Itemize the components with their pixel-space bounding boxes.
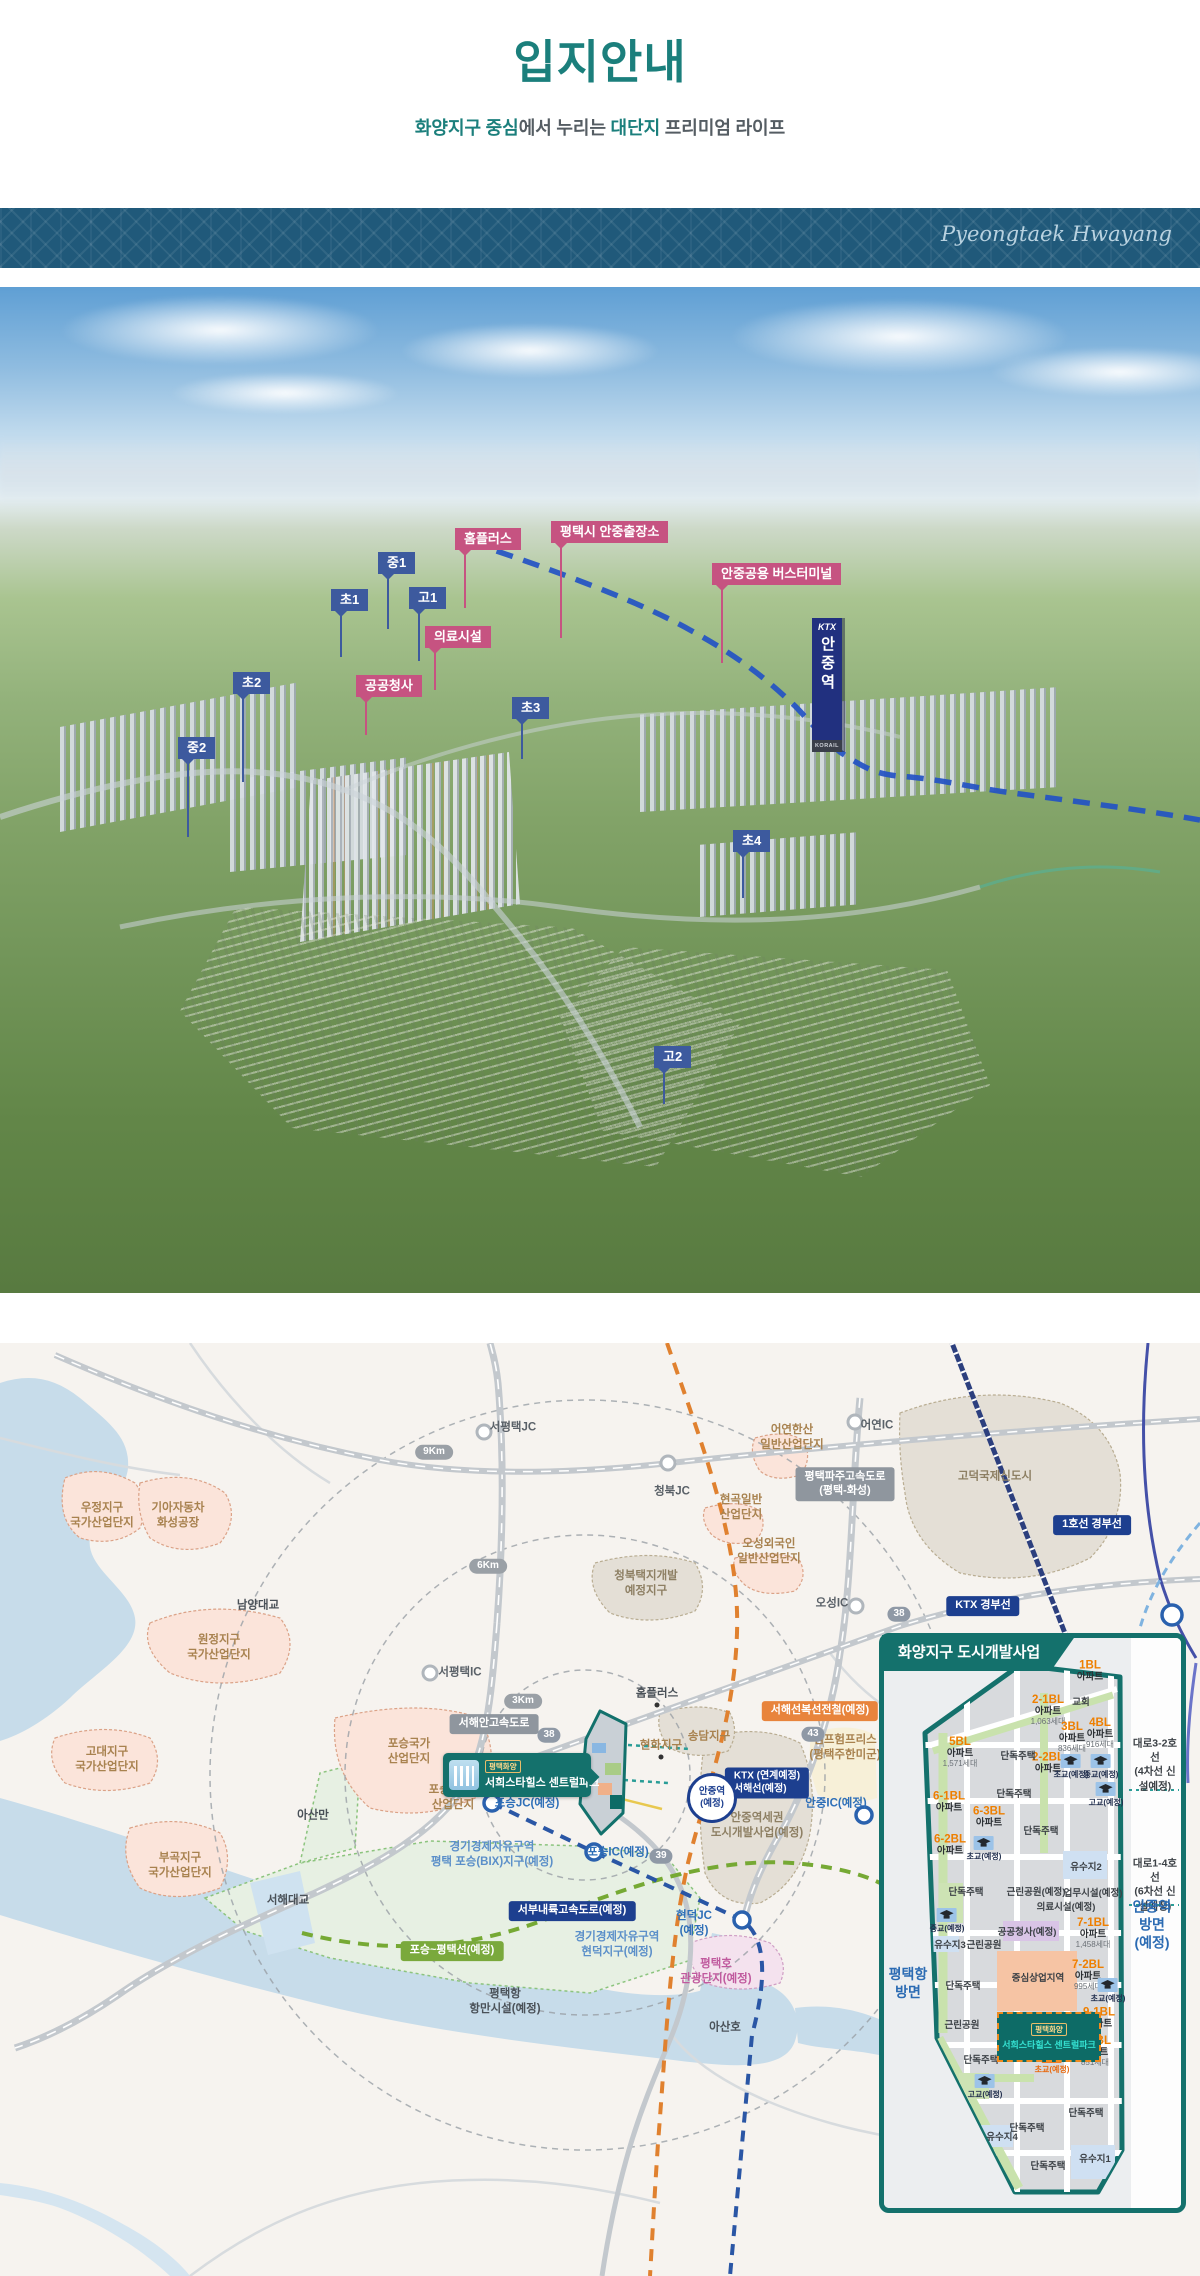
school-caption: 고교(예정) [1089, 1797, 1124, 1808]
school-caption: 고교(예정) [968, 2089, 1003, 2100]
map-label-text: 포승IC(예정) [587, 1847, 648, 1859]
aerial-map-label-text: 의료시설 [434, 629, 482, 644]
block-number: 5BL [943, 1736, 978, 1749]
map-label-text: 포승JC(예정) [495, 1798, 560, 1810]
aerial-map-label-text: 초4 [742, 833, 761, 848]
map-label: 서평택IC [438, 1666, 481, 1681]
panel-plain-label: 단독주택 [964, 2052, 999, 2066]
map-badge: 3Km [504, 1694, 542, 1709]
aerial-map-label: 초1 [331, 589, 368, 611]
panel-block-label: 6-3BL 아파트 [973, 1805, 1005, 1829]
block-number: 3BL [1058, 1721, 1086, 1734]
aerial-map-label-text: 평택시 안중출장소 [560, 524, 659, 539]
site-tag: 평택화양 [1031, 2023, 1067, 2036]
map-label: 안중IC(예정) [805, 1797, 866, 1812]
panel-plain-text: 공공청사(예정) [998, 1927, 1057, 1938]
label-tail [464, 550, 466, 608]
aerial-map-label: 의료시설 [425, 626, 491, 648]
label-tail [742, 852, 744, 898]
map-label: 어연IC [861, 1419, 894, 1434]
map-badge-text: 39 [655, 1850, 666, 1861]
panel-roadnote-text: 평택항 방면 [889, 1966, 928, 2000]
label-tail [242, 694, 244, 782]
map-label-text: 기아자동차 화성공장 [152, 1502, 205, 1529]
school-caption: 초교(예정) [1035, 2064, 1070, 2075]
project-tag: 평택화양 [485, 1760, 521, 1773]
panel-plain-label: 단독주택 [946, 1978, 981, 1992]
map-label: 경기경제자유구역 현덕지구(예정) [575, 1930, 660, 1960]
panel-plain-label: 근린공원(예정) [1007, 1884, 1066, 1898]
panel-plain-label: 중심상업지역 [1012, 1970, 1064, 1984]
map-label: 송담지구 [688, 1730, 730, 1745]
map-label-text: 평택항 항만시설(예정) [469, 1988, 540, 2015]
map-label-text: 우정지구 국가산업단지 [70, 1502, 133, 1529]
panel-plain-text: 단독주택 [997, 1789, 1032, 1800]
subtitle-plain-1: 에서 누리는 [519, 118, 611, 138]
panel-block-label: 5BL 아파트 1,571세대 [943, 1736, 978, 1768]
label-tail [434, 648, 436, 690]
map-label: 평택호 관광단지(예정) [680, 1957, 751, 1987]
aerial-map-label: 고1 [409, 587, 446, 609]
panel-plain-text: 유수지2 [1070, 1862, 1102, 1873]
panel-plain-label: 의료시설(예정) [1037, 1899, 1096, 1913]
panel-plain-text: 근린공원 [967, 1940, 1002, 1951]
map-label: 오성IC [816, 1597, 849, 1612]
panel-plain-label: 근린공원 [967, 1937, 1002, 1951]
project-site-block: 평택화양 서희스타힐스 센트럴파크 [997, 2012, 1101, 2062]
panel-plain-label: 유수지3 [934, 1937, 966, 1951]
map-label-text: 고덕국제신도시 [958, 1471, 1032, 1483]
anjung-station-sign: KTX 안중역 KORAIL [812, 618, 842, 752]
block-units: 1,571세대 [943, 1759, 978, 1768]
panel-plain-text: 의료시설(예정) [1037, 1902, 1096, 1913]
map-badge-text: KTX (연계예정) 서해선(예정) [734, 1771, 800, 1795]
block-use: 아파트 [1077, 1672, 1103, 1683]
panel-plain-text: 단독주택 [1031, 2161, 1066, 2172]
map-label-text: 평택호 관광단지(예정) [680, 1958, 751, 1985]
spacer [0, 1293, 1200, 1343]
map-label: 원정지구 국가산업단지 [187, 1633, 250, 1663]
map-label: 부곡지구 국가산업단지 [148, 1851, 211, 1881]
map-badge-text: 38 [543, 1729, 554, 1740]
map-label-text: 남양대교 [237, 1600, 279, 1612]
block-use: 아파트 [933, 1803, 965, 1814]
panel-roadnote: 대로3-2호선 (4차선 신설예정) [1133, 1737, 1178, 1794]
map-badge: 1호선 경부선 [1053, 1515, 1131, 1535]
panel-roadnote: 안중역방면 (예정) [1128, 1898, 1176, 1953]
panel-plain-label: 단독주택 [1031, 2158, 1066, 2172]
label-tail [521, 719, 523, 759]
map-badge-text: 서부내륙고속도로(예정) [518, 1904, 627, 1916]
panel-plain-label: 업무시설(예정) [1064, 1885, 1123, 1899]
block-use: 아파트 [1086, 1730, 1114, 1741]
panel-block-label: 6-2BL 아파트 [934, 1833, 966, 1857]
map-label-text: 송담지구 [688, 1731, 730, 1743]
map-label: 홈플러스 [636, 1687, 678, 1702]
map-badge-text: 서해안고속도로 [459, 1717, 530, 1729]
school-icon [974, 1836, 994, 1850]
map-label-text: 청북JC [654, 1486, 690, 1498]
map-label-text: 오성외국인 일반산업단지 [737, 1538, 800, 1565]
school-marker: 고교(예정) [1089, 1782, 1124, 1808]
school-marker: 초교(예정) [967, 1836, 1002, 1862]
map-badge: 서부내륙고속도로(예정) [509, 1901, 636, 1921]
map-label: 기아자동차 화성공장 [152, 1501, 205, 1531]
aerial-map-label: 고2 [654, 1046, 691, 1068]
map-label-text: 현화지구 [640, 1740, 682, 1752]
school-icon [975, 2074, 995, 2088]
label-tail [721, 585, 723, 663]
panel-block-label: 7-1BL 아파트 1,458세대 [1076, 1917, 1111, 1949]
block-number: 1BL [1077, 1659, 1103, 1672]
map-badge-text: 38 [893, 1608, 904, 1619]
aerial-roads-layer [0, 287, 1200, 1293]
map-badge: 서해선복선전철(예정) [762, 1701, 878, 1721]
station-name-vertical: 안중역 [817, 634, 838, 740]
panel-plain-text: 유수지1 [1079, 2154, 1111, 2165]
panel-roadnote-text: 안중역방면 (예정) [1133, 1899, 1172, 1951]
map-label: 현화지구 [640, 1739, 682, 1754]
aerial-map-label: 중1 [378, 552, 415, 574]
school-marker: 중교(예정) [1084, 1754, 1119, 1780]
site-name: 서희스타힐스 센트럴파크 [1002, 2038, 1096, 2051]
label-tail [560, 543, 562, 638]
panel-plain-text: 단독주택 [1001, 1751, 1036, 1762]
panel-plain-label: 유수지2 [1070, 1859, 1102, 1873]
section-header: 입지안내 화양지구 중심에서 누리는 대단지 프리미엄 라이프 [0, 0, 1200, 208]
aerial-birdseye-view: 홈플러스평택시 안중출장소안중공용 버스터미널의료시설공공청사중1초1고1초2중… [0, 287, 1200, 1293]
map-label-text: 어연한산 일반산업단지 [760, 1424, 823, 1451]
map-label: 청북JC [654, 1485, 690, 1500]
block-use: 아파트 [1058, 1734, 1086, 1745]
subtitle-plain-2: 프리미엄 라이프 [660, 118, 785, 138]
map-label: 평택항 항만시설(예정) [469, 1987, 540, 2017]
label-tail [365, 697, 367, 735]
aerial-map-label-text: 초1 [340, 592, 359, 607]
korail-logo: KORAIL [812, 740, 842, 752]
panel-roadnote: 평택항 방면 [889, 1965, 928, 2001]
map-label-text: 현덕JC (예정) [676, 1910, 712, 1937]
map-label: 오성외국인 일반산업단지 [737, 1537, 800, 1567]
block-units: 1,458세대 [1076, 1940, 1111, 1949]
page-subtitle: 화양지구 중심에서 누리는 대단지 프리미엄 라이프 [0, 114, 1200, 140]
map-label: 남양대교 [237, 1599, 279, 1614]
block-units: 916세대 [1086, 1740, 1114, 1749]
location-map: 우정지구 국가산업단지기아자동차 화성공장원정지구 국가산업단지고대지구 국가산… [0, 1343, 1200, 2276]
map-label: 포승JC(예정) [495, 1797, 560, 1812]
map-label: 고덕국제신도시 [958, 1470, 1032, 1485]
map-badge-text: 6Km [477, 1560, 499, 1571]
map-badge-text: KTX 경부선 [955, 1599, 1010, 1611]
block-use: 아파트 [973, 1818, 1005, 1829]
school-caption: 중교(예정) [1084, 1769, 1119, 1780]
spacer [0, 268, 1200, 287]
block-number: 6-3BL [973, 1805, 1005, 1818]
map-badge: 평택파주고속도로 (평택-화성) [796, 1467, 895, 1501]
school-marker: 중교(예정) [930, 1908, 965, 1934]
map-label: 현곡일반 산업단지 [720, 1493, 762, 1523]
map-label: 고대지구 국가산업단지 [75, 1745, 138, 1775]
map-label-text: 포승국가 산업단지 [388, 1738, 430, 1765]
map-label-text: 원정지구 국가산업단지 [187, 1634, 250, 1661]
map-badge: KTX 경부선 [946, 1596, 1019, 1616]
school-icon [1091, 1754, 1111, 1768]
map-label: 경기경제자유구역 평택 포승(BIX)지구(예정) [431, 1840, 553, 1870]
map-label: 우정지구 국가산업단지 [70, 1501, 133, 1531]
map-badge-text: 1호선 경부선 [1062, 1518, 1122, 1530]
map-badge: 안중역 (예정) [687, 1773, 737, 1823]
map-label: 포승국가 산업단지 [388, 1737, 430, 1767]
map-label-text: 부곡지구 국가산업단지 [148, 1852, 211, 1879]
aerial-map-label-text: 고1 [418, 590, 437, 605]
map-label-text: 아산호 [709, 2022, 741, 2034]
panel-plain-text: 단독주택 [949, 1887, 984, 1898]
panel-plain-text: 중심상업지역 [1012, 1973, 1064, 1984]
panel-plain-label: 단독주택 [949, 1884, 984, 1898]
block-use: 아파트 [943, 1749, 978, 1760]
block-number: 6-1BL [933, 1790, 965, 1803]
panel-plain-label: 단독주택 [1069, 2105, 1104, 2119]
aerial-map-label-text: 공공청사 [365, 678, 413, 693]
panel-block-label: 3BL 아파트 836세대 [1058, 1721, 1086, 1753]
aerial-map-label: 초4 [733, 830, 770, 852]
aerial-map-label: 초2 [233, 672, 270, 694]
subtitle-accent-1: 화양지구 중심 [415, 118, 519, 138]
label-tail [187, 759, 189, 837]
school-icon [1096, 1782, 1116, 1796]
map-label-text: 경기경제자유구역 평택 포승(BIX)지구(예정) [431, 1841, 553, 1868]
aerial-map-label-text: 초2 [242, 675, 261, 690]
aerial-map-label: 초3 [512, 697, 549, 719]
map-badge-text: 3Km [512, 1695, 534, 1706]
panel-plain-text: 단독주택 [964, 2055, 999, 2066]
map-label-text: 서해대교 [267, 1895, 309, 1907]
aerial-map-label-text: 중2 [187, 740, 206, 755]
school-caption: 초교(예정) [967, 1851, 1002, 1862]
aerial-map-label: 홈플러스 [455, 528, 521, 550]
ktx-logo: KTX [818, 618, 836, 634]
pattern-banner: Pyeongtaek Hwayang [0, 208, 1200, 268]
map-badge: 39 [649, 1849, 672, 1864]
map-badge: KTX (연계예정) 서해선(예정) [725, 1768, 809, 1799]
map-badge: 포승~평택선(예정) [401, 1941, 504, 1961]
panel-plain-text: 근린공원 [945, 2020, 980, 2031]
aerial-map-label: 안중공용 버스터미널 [712, 563, 841, 585]
panel-block-label: 1BL 아파트 [1077, 1659, 1103, 1683]
map-badge: 서해안고속도로 [450, 1714, 539, 1734]
block-number: 7-1BL [1076, 1917, 1111, 1930]
panel-plain-label: 근린공원 [945, 2017, 980, 2031]
aerial-map-label-text: 안중공용 버스터미널 [721, 566, 832, 581]
school-caption: 중교(예정) [930, 1923, 965, 1934]
map-label-text: 아산만 [297, 1810, 329, 1822]
panel-plain-label: 공공청사(예정) [998, 1924, 1057, 1938]
panel-plain-text: 단독주택 [1069, 2108, 1104, 2119]
school-marker: 초교(예정) [1091, 1978, 1126, 2004]
panel-plain-label: 유수지1 [1079, 2151, 1111, 2165]
block-use: 아파트 [1031, 1707, 1066, 1718]
block-number: 7-2BL [1072, 1959, 1104, 1972]
panel-roadnote-text: 대로3-2호선 (4차선 신설예정) [1133, 1738, 1177, 1793]
map-label: 서평택JC [490, 1421, 536, 1436]
map-label-text: 어연IC [861, 1420, 894, 1432]
school-icon [937, 1908, 957, 1922]
aerial-map-label: 평택시 안중출장소 [551, 521, 668, 543]
map-badge: 38 [887, 1607, 910, 1622]
panel-plain-label: 단독주택 [1001, 1748, 1036, 1762]
aerial-map-label-text: 고2 [663, 1049, 682, 1064]
panel-plain-text: 유수지3 [934, 1940, 966, 1951]
map-badge-text: 포승~평택선(예정) [410, 1944, 495, 1956]
aerial-map-label: 공공청사 [356, 675, 422, 697]
map-label-text: 청북택지개발 예정지구 [614, 1570, 677, 1597]
block-use: 아파트 [1076, 1930, 1111, 1941]
project-callout: 평택화양 서희스타힐스 센트럴파크 [443, 1753, 591, 1797]
map-badge-text: 43 [807, 1728, 818, 1739]
label-tail [387, 574, 389, 629]
page-title: 입지안내 [0, 0, 1200, 92]
label-tail [663, 1068, 665, 1104]
label-tail [340, 611, 342, 657]
map-badge: 43 [801, 1727, 824, 1742]
block-number: 2-1BL [1031, 1694, 1066, 1707]
map-label: 서해대교 [267, 1894, 309, 1909]
map-badge: 6Km [469, 1559, 507, 1574]
map-label: 청북택지개발 예정지구 [614, 1569, 677, 1599]
aerial-map-label-text: 초3 [521, 700, 540, 715]
map-label-text: 현곡일반 산업단지 [720, 1494, 762, 1521]
panel-plain-text: 업무시설(예정) [1064, 1888, 1123, 1899]
label-tail [418, 609, 420, 661]
map-badge: 38 [537, 1728, 560, 1743]
map-label-text: 서평택IC [438, 1667, 481, 1679]
school-marker: 고교(예정) [968, 2074, 1003, 2100]
map-badge-text: 9Km [423, 1446, 445, 1457]
map-badge-text: 평택파주고속도로 (평택-화성) [805, 1470, 886, 1496]
school-icon [1098, 1978, 1118, 1992]
block-number: 4BL [1086, 1717, 1114, 1730]
block-number: 6-2BL [934, 1833, 966, 1846]
map-label-text: 홈플러스 [636, 1688, 678, 1700]
map-label-text: 경기경제자유구역 현덕지구(예정) [575, 1931, 660, 1958]
project-thumbnail [449, 1760, 479, 1790]
panel-plain-label: 단독주택 [1024, 1823, 1059, 1837]
map-label-text: 서평택JC [490, 1422, 536, 1434]
map-badge: 9Km [415, 1445, 453, 1460]
block-use: 아파트 [934, 1846, 966, 1857]
panel-plain-label: 유수지4 [986, 2129, 1018, 2143]
map-label: 아산만 [297, 1809, 329, 1824]
panel-plain-text: 단독주택 [1024, 1826, 1059, 1837]
aerial-map-label: 중2 [178, 737, 215, 759]
map-label-text: 안중IC(예정) [805, 1798, 866, 1810]
map-label-text: 오성IC [816, 1598, 849, 1610]
panel-plain-text: 단독주택 [946, 1981, 981, 1992]
panel-plain-label: 단독주택 [997, 1786, 1032, 1800]
aerial-map-label-text: 홈플러스 [464, 531, 512, 546]
map-label: 어연한산 일반산업단지 [760, 1423, 823, 1453]
map-label: 아산호 [709, 2021, 741, 2036]
map-label-text: 고대지구 국가산업단지 [75, 1746, 138, 1773]
map-label: 포승IC(예정) [587, 1846, 648, 1861]
map-badge-text: 안중역 (예정) [699, 1786, 725, 1810]
district-panel-title: 화양지구 도시개발사업 [882, 1635, 1076, 1671]
panel-block-label: 4BL 아파트 916세대 [1086, 1717, 1114, 1749]
map-label: 현덕JC (예정) [676, 1909, 712, 1939]
map-badge-text: 서해선복선전철(예정) [771, 1704, 869, 1716]
subtitle-accent-2: 대단지 [611, 118, 661, 138]
panel-plain-label: 교회 [1072, 1694, 1089, 1708]
panel-block-label: 6-1BL 아파트 [933, 1790, 965, 1814]
panel-plain-text: 유수지4 [986, 2132, 1018, 2143]
banner-script-text: Pyeongtaek Hwayang [941, 222, 1172, 246]
aerial-map-label-text: 중1 [387, 555, 406, 570]
panel-plain-text: 근린공원(예정) [1007, 1887, 1066, 1898]
panel-plain-text: 교회 [1072, 1697, 1089, 1708]
school-icon [1061, 1754, 1081, 1768]
school-caption: 초교(예정) [1091, 1993, 1126, 2004]
